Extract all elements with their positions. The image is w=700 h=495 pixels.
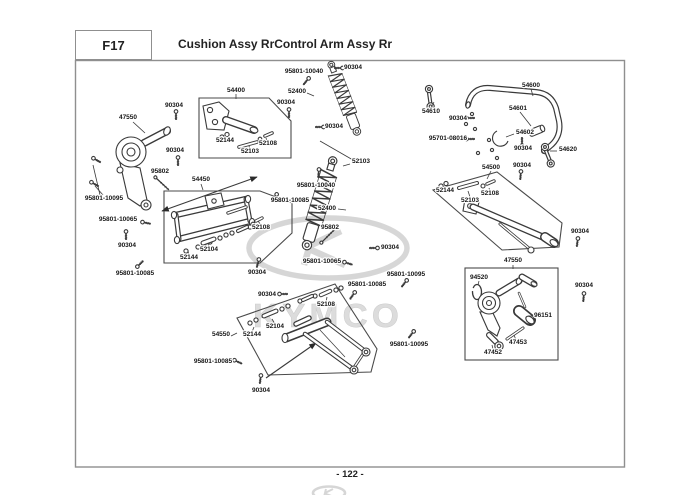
part-label-52400: 52400 xyxy=(318,205,336,212)
part-label-52104: 52104 xyxy=(266,323,284,330)
part-label-54620: 54620 xyxy=(559,146,577,153)
part-label-95801-10065: 95801-10065 xyxy=(303,258,342,265)
part-label-90304: 90304 xyxy=(165,102,183,109)
part-label-90304: 90304 xyxy=(248,269,266,276)
part-label-95801-10040: 95801-10040 xyxy=(285,68,324,75)
part-label-95801-10065: 95801-10065 xyxy=(99,216,138,223)
part-label-95801-10095: 95801-10095 xyxy=(387,271,426,278)
part-label-54602: 54602 xyxy=(516,129,534,136)
part-label-54550: 54550 xyxy=(212,331,230,338)
part-label-47453: 47453 xyxy=(509,339,527,346)
part-label-95801-10085: 95801-10085 xyxy=(271,197,310,204)
part-label-54601: 54601 xyxy=(509,105,527,112)
part-label-90304: 90304 xyxy=(381,244,399,251)
part-label-54450: 54450 xyxy=(192,176,210,183)
part-label-90304: 90304 xyxy=(166,147,184,154)
part-label-47550: 47550 xyxy=(119,114,137,121)
part-label-95801-10095: 95801-10095 xyxy=(85,195,124,202)
page-number: - 122 - xyxy=(0,469,700,480)
part-label-47452: 47452 xyxy=(484,349,502,356)
part-label-95801-10040: 95801-10040 xyxy=(297,182,336,189)
part-label-52400: 52400 xyxy=(288,88,306,95)
part-label-90304: 90304 xyxy=(118,242,136,249)
part-label-90304: 90304 xyxy=(277,99,295,106)
part-label-52144: 52144 xyxy=(436,187,454,194)
part-label-52144: 52144 xyxy=(216,137,234,144)
part-label-54400: 54400 xyxy=(227,87,245,94)
part-label-52104: 52104 xyxy=(200,246,218,253)
part-label-90304: 90304 xyxy=(575,282,593,289)
part-label-95801-10085: 95801-10085 xyxy=(348,281,387,288)
part-label-96151: 96151 xyxy=(534,312,552,319)
part-label-90304: 90304 xyxy=(514,145,532,152)
stabilizer-link-54610 xyxy=(423,85,437,111)
part-label-90304: 90304 xyxy=(571,228,589,235)
part-label-52108: 52108 xyxy=(481,190,499,197)
exploded-parts-diagram: KYMCO xyxy=(0,0,700,495)
part-label-95801-10095: 95801-10095 xyxy=(390,341,429,348)
part-label-90304: 90304 xyxy=(252,387,270,394)
part-label-47550: 47550 xyxy=(504,257,522,264)
arm-54500-parts xyxy=(439,181,559,253)
part-label-54600: 54600 xyxy=(522,82,540,89)
part-label-52103: 52103 xyxy=(352,158,370,165)
kymco-watermark-mini xyxy=(313,487,345,495)
part-label-52108: 52108 xyxy=(252,224,270,231)
part-label-54500: 54500 xyxy=(482,164,500,171)
part-label-90304: 90304 xyxy=(513,162,531,169)
part-label-90304: 90304 xyxy=(325,123,343,130)
part-label-90304: 90304 xyxy=(449,115,467,122)
part-label-52103: 52103 xyxy=(461,197,479,204)
part-label-90304: 90304 xyxy=(258,291,276,298)
part-label-94520: 94520 xyxy=(470,274,488,281)
part-label-54610: 54610 xyxy=(422,108,440,115)
part-label-95801-10085: 95801-10085 xyxy=(116,270,155,277)
manual-page: { "header": { "section_code": "F17", "ti… xyxy=(0,0,700,495)
part-label-52108: 52108 xyxy=(259,140,277,147)
part-label-52144: 52144 xyxy=(180,254,198,261)
stabilizer-clamp-54602 xyxy=(493,131,508,146)
part-label-90304: 90304 xyxy=(344,64,362,71)
knuckle-right-47550-parts xyxy=(473,277,538,351)
part-label-95801-10085: 95801-10085 xyxy=(194,358,233,365)
part-label-95802: 95802 xyxy=(151,168,169,175)
part-label-95802: 95802 xyxy=(321,224,339,231)
assembly-arrow-lower xyxy=(266,343,316,378)
part-label-52103: 52103 xyxy=(241,148,259,155)
part-label-52108: 52108 xyxy=(317,301,335,308)
part-label-52144: 52144 xyxy=(243,331,261,338)
part-label-95701-08016: 95701-08016 xyxy=(429,135,468,142)
